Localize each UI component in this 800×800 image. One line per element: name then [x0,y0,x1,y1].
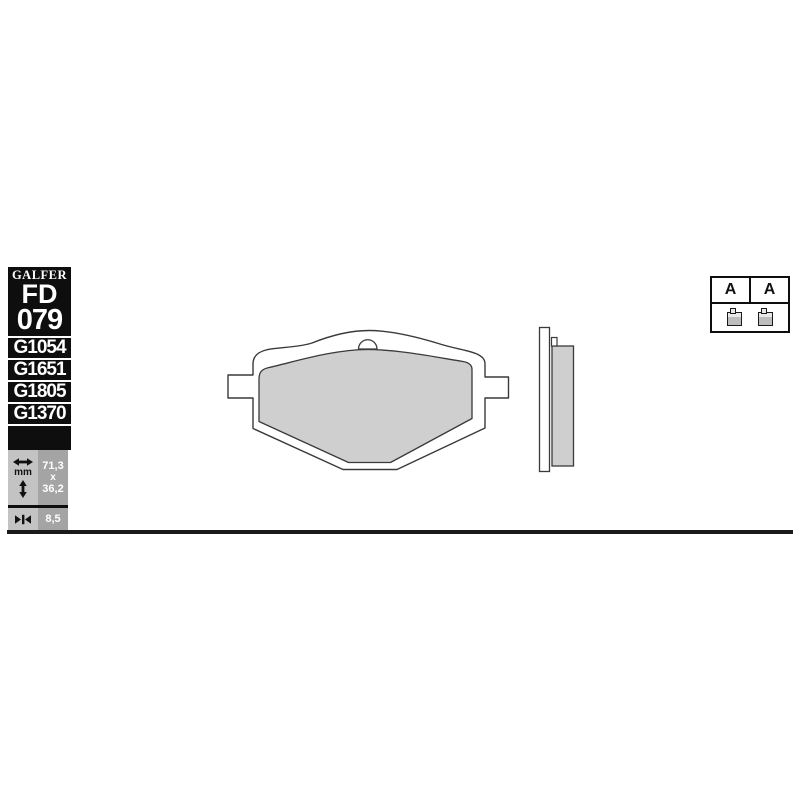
thickness-row: 8,5 [8,508,68,530]
part-info-sidebar: GALFER FD 079 G1054 G1651 G1805 G1370 [8,267,71,530]
brake-pad-side-view [533,320,579,478]
height-arrow-icon [18,479,28,499]
compound-code: G1651 [8,360,71,380]
brake-pad-icon [758,312,773,326]
friction-material-profile [552,346,574,466]
model-number: 079 [8,307,71,336]
thickness-arrow-icon [13,514,33,525]
product-drawing-page: GALFER FD 079 G1054 G1651 G1805 G1370 [0,0,800,800]
compound-code: G1370 [8,404,71,424]
height-value: 36,2 [42,483,63,495]
compound-code: G1054 [8,338,71,358]
compound-type-label: A [712,278,751,302]
compound-type-label: A [751,278,788,302]
dimensions-block: mm 71,3 x 36,2 [8,450,68,530]
width-arrow-icon [12,457,34,467]
thickness-icon-cell [8,508,38,530]
size-icons-cell: mm [8,450,38,505]
brake-pad-icon [727,312,742,326]
size-row: mm 71,3 x 36,2 [8,450,68,505]
dimension-separator: x [50,472,56,483]
size-values-cell: 71,3 x 36,2 [38,450,68,505]
compound-type-table: A A [710,276,790,333]
pad-step-notch [552,338,558,347]
unit-label: mm [14,468,32,478]
brake-pad-front-view [220,322,515,478]
spacer [8,426,71,450]
thickness-value: 8,5 [45,513,60,525]
backing-plate-profile [540,328,550,472]
compound-type-header-row: A A [712,278,788,304]
thickness-value-cell: 8,5 [38,508,68,530]
compound-type-icon-row [712,304,788,331]
part-code-block: GALFER FD 079 G1054 G1651 G1805 G1370 [8,267,71,450]
width-value: 71,3 [42,460,63,472]
baseline-rule [7,530,793,534]
compound-code: G1805 [8,382,71,402]
